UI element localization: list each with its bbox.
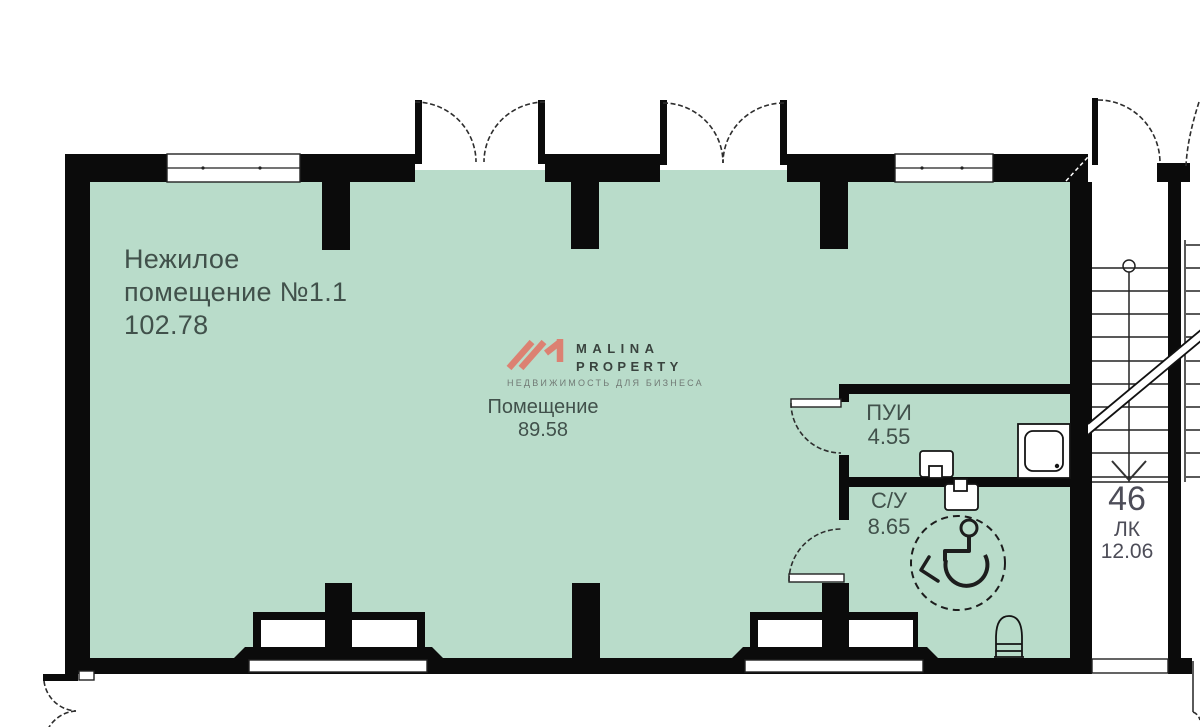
hall-label: Помещение 89.58 — [463, 396, 623, 442]
pui-name: ПУИ — [845, 401, 933, 425]
door-leaf — [789, 574, 844, 582]
door-leaf — [791, 399, 841, 407]
stair-break-line — [1088, 329, 1200, 435]
sink-pui — [920, 451, 953, 478]
entrance-door-2 — [660, 100, 787, 165]
stair-newel — [1123, 260, 1135, 272]
door-leaf — [538, 100, 545, 164]
su-name: С/У — [845, 488, 933, 514]
stairwell-name: ЛК — [1090, 518, 1164, 541]
su-area: 8.65 — [845, 514, 933, 540]
stairwell-label: 46 ЛК 12.06 — [1090, 481, 1164, 563]
doorway-jamb-bottom-left — [79, 671, 94, 680]
logo-text-line2: PROPERTY — [576, 359, 683, 374]
pui-label: ПУИ 4.55 — [845, 401, 933, 449]
door-leaf — [415, 100, 422, 164]
bottom-left-door — [43, 674, 78, 727]
edge-door-arc — [1186, 102, 1199, 166]
lobby-entry-door — [1088, 98, 1160, 182]
sink-su — [945, 479, 978, 510]
hall-name: Помещение — [463, 396, 623, 419]
malina-logo-mark — [505, 338, 571, 372]
door-leaf — [780, 100, 787, 165]
stair-entry-pillar — [1157, 163, 1190, 182]
stair-steps-right-flight — [1185, 240, 1200, 482]
staircase — [1088, 240, 1200, 482]
bottom-window-left — [249, 660, 427, 672]
bottom-window-right — [745, 660, 923, 672]
shower-tray — [1018, 424, 1070, 478]
unit-name-line1: Нежилое — [124, 243, 347, 276]
window-lobby-bottom — [1092, 659, 1168, 673]
unit-label: Нежилое помещение №1.1 102.78 — [124, 243, 347, 342]
malina-property-logo: MALINA PROPERTY НЕДВИЖИМОСТЬ ДЛЯ БИЗНЕСА — [505, 338, 715, 390]
shower-drain — [1055, 464, 1059, 468]
unit-area: 102.78 — [124, 309, 347, 342]
door-leaf — [43, 674, 78, 681]
door-leaf — [1092, 98, 1098, 165]
logo-tagline: НЕДВИЖИМОСТЬ ДЛЯ БИЗНЕСА — [507, 378, 704, 388]
unit-name-line2: помещение №1.1 — [124, 276, 347, 309]
window-top-right — [895, 154, 993, 182]
stairwell-area: 12.06 — [1090, 541, 1164, 563]
door-leaf — [660, 100, 667, 165]
stair-right-wall — [1168, 163, 1181, 674]
logo-text-line1: MALINA — [576, 341, 660, 356]
su-label: С/У 8.65 — [845, 488, 933, 540]
floor-plan: Нежилое помещение №1.1 102.78 Помещение … — [0, 0, 1200, 727]
stairwell-number: 46 — [1090, 481, 1164, 518]
pui-area: 4.55 — [845, 425, 933, 449]
entrance-door-1 — [415, 100, 545, 164]
hall-area: 89.58 — [463, 419, 623, 442]
bottom-right-door — [1193, 661, 1200, 720]
window-top-left — [167, 154, 300, 182]
